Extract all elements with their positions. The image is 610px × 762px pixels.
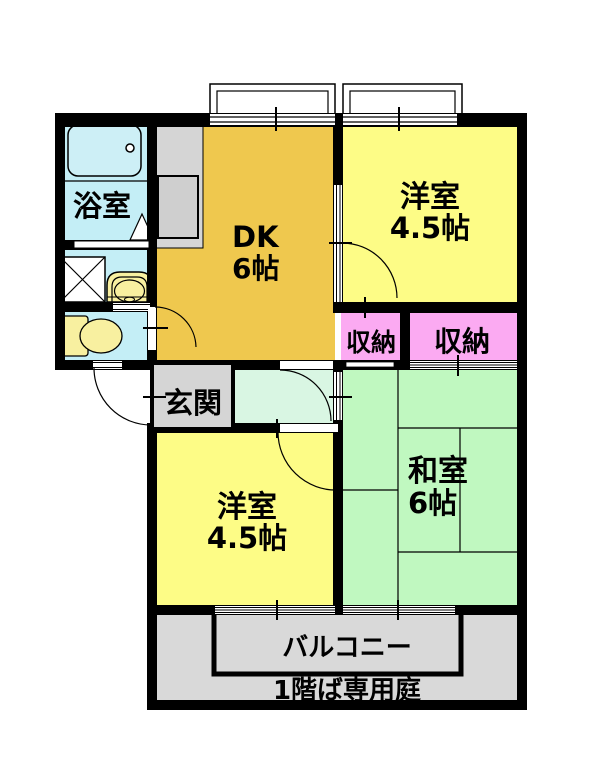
label-dk-size: 6帖 (232, 252, 279, 285)
label-dk: DK (232, 220, 280, 254)
label-japanese: 和室 (408, 454, 468, 489)
wall-japanese-left (333, 425, 343, 615)
label-western-upper: 洋室 (400, 180, 460, 215)
toilet-bowl (80, 319, 122, 353)
wall-storage-top (333, 302, 527, 313)
toilet (61, 316, 122, 356)
washbasin (107, 272, 152, 302)
floor-plan-page: 浴室 DK 6帖 洋室 4.5帖 収納 収納 玄関 和室 6帖 洋室 4.5帖 … (0, 0, 610, 762)
label-storage-small: 収納 (346, 328, 396, 357)
opening-storage-small-bottom (346, 362, 394, 367)
entrance-door-arc (94, 368, 151, 425)
label-bathroom: 浴室 (73, 189, 131, 223)
washbasin-bowl (115, 280, 145, 302)
wall-balcony-left (147, 605, 157, 710)
label-storage-large: 収納 (434, 325, 490, 358)
label-japanese-size: 6帖 (408, 486, 457, 520)
wall-western-lower-left (147, 425, 157, 615)
floor-plan: 浴室 DK 6帖 洋室 4.5帖 収納 収納 玄関 和室 6帖 洋室 4.5帖 … (0, 0, 610, 762)
label-entrance: 玄関 (164, 386, 222, 420)
bay-windows (210, 84, 462, 115)
wall-right (517, 113, 527, 710)
label-garden-note: 1階ば専用庭 (273, 675, 421, 706)
bathroom-door-strip (74, 241, 149, 248)
label-western-upper-size: 4.5帖 (390, 211, 470, 245)
wall-storage-divider (400, 302, 410, 370)
window-top-left (210, 114, 335, 125)
bay-window-right-inner (350, 91, 455, 115)
kitchen-sink (158, 176, 198, 238)
bay-window-left-inner (217, 91, 328, 115)
label-balcony: バルコニー (282, 633, 411, 663)
bathtub-drain (126, 144, 134, 152)
wall-balcony-top (147, 605, 527, 615)
label-western-lower-size: 4.5帖 (207, 521, 287, 555)
opening-corridor-western-lower (280, 424, 338, 432)
opening-dk-corridor (280, 361, 333, 369)
room-corridor (231, 365, 335, 427)
label-western-lower: 洋室 (217, 490, 277, 525)
